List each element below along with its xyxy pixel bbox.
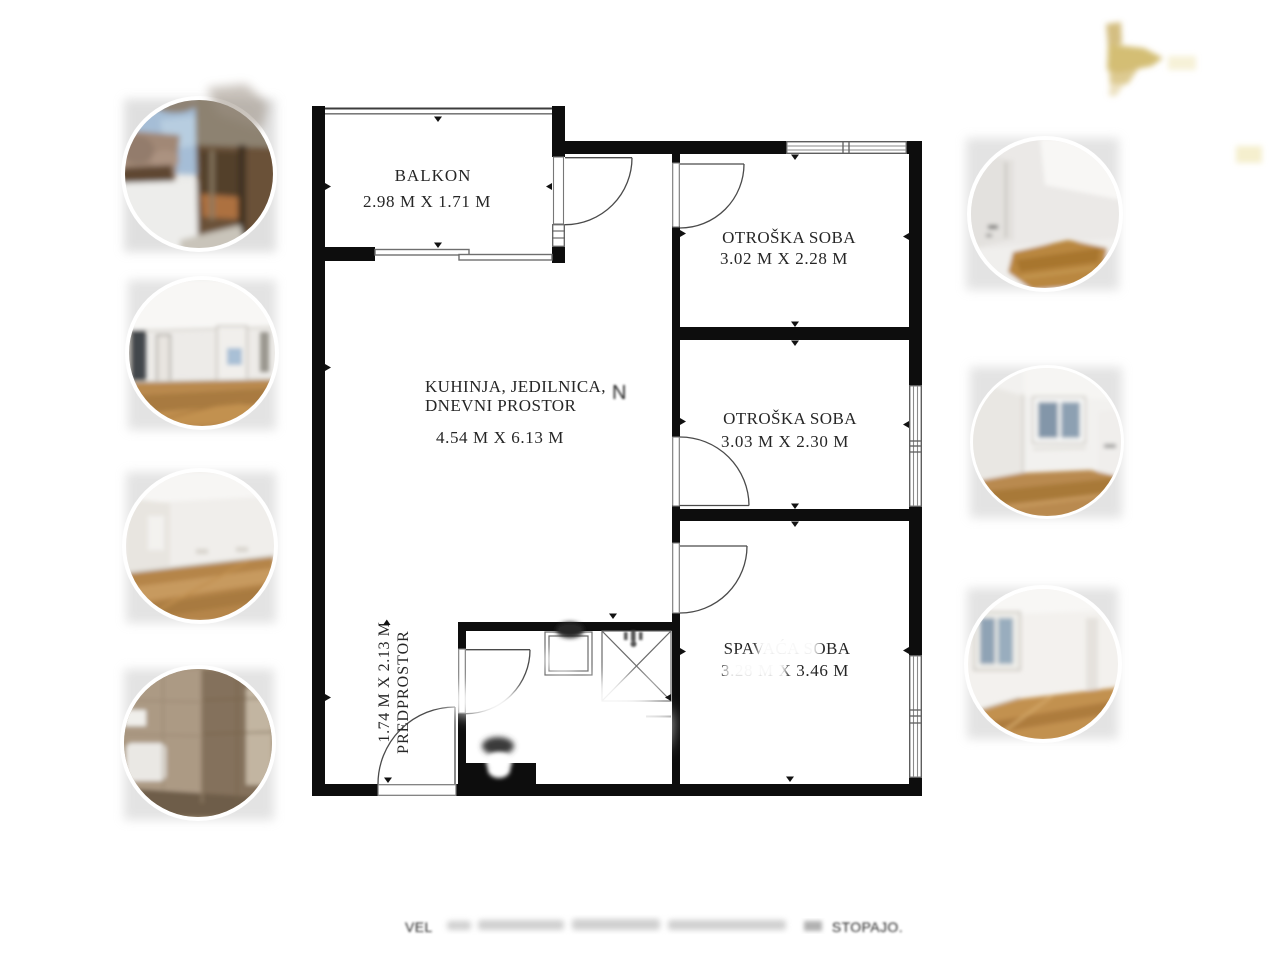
svg-text:DNEVNI PROSTOR: DNEVNI PROSTOR [425, 396, 576, 415]
svg-text:VEL: VEL [405, 919, 433, 935]
svg-text:OTROŠKA SOBA: OTROŠKA SOBA [722, 228, 856, 247]
svg-text:OTROŠKA SOBA: OTROŠKA SOBA [723, 409, 857, 428]
svg-text:BALKON: BALKON [395, 166, 472, 185]
svg-text:3.03 M X 2.30 M: 3.03 M X 2.30 M [721, 432, 849, 451]
svg-text:3.02 M X 2.28 M: 3.02 M X 2.28 M [720, 249, 848, 268]
svg-text:STOPAJO.: STOPAJO. [832, 919, 903, 935]
svg-text:N: N [612, 382, 626, 404]
svg-text:1.74 M X 2.13 M: 1.74 M X 2.13 M [376, 621, 393, 742]
svg-text:KUHINJA, JEDILNICA,: KUHINJA, JEDILNICA, [425, 377, 606, 396]
svg-text:2.98 M X 1.71 M: 2.98 M X 1.71 M [363, 192, 491, 211]
svg-text:PREDPROSTOR: PREDPROSTOR [395, 630, 412, 754]
svg-text:4.54 M X 6.13 M: 4.54 M X 6.13 M [436, 428, 564, 447]
